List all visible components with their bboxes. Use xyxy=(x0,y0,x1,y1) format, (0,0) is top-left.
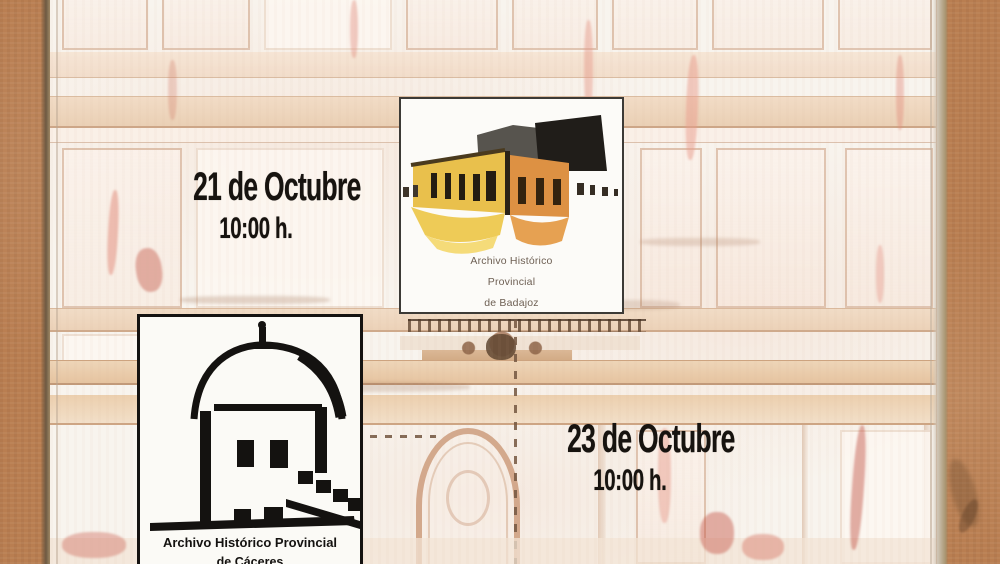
poster-sheet: 21 de Octubre 10:00 h. 23 de Octubre 10:… xyxy=(50,0,936,564)
dome-building-icon xyxy=(140,319,360,531)
date-label: 23 de Octubre xyxy=(567,422,734,456)
caption-line: de Badajoz xyxy=(401,293,622,314)
date-label: 21 de Octubre xyxy=(193,170,360,204)
poster-right-edge-shadow xyxy=(932,0,948,564)
time-label: 10:00 h. xyxy=(219,217,292,241)
poster-photo: 21 de Octubre 10:00 h. 23 de Octubre 10:… xyxy=(0,0,1000,564)
badajoz-logo-caption: Archivo Histórico Provincial de Badajoz xyxy=(401,251,622,314)
facade-edge-line xyxy=(56,0,58,564)
session-23-october: 23 de Octubre 10:00 h. xyxy=(524,422,736,495)
time-label: 10:00 h. xyxy=(593,469,666,493)
caption-line: Archivo Histórico xyxy=(401,251,622,272)
badajoz-archive-logo-box: Archivo Histórico Provincial de Badajoz xyxy=(399,97,624,314)
session-21-october: 21 de Octubre 10:00 h. xyxy=(150,170,362,243)
caceres-logo-caption: Archivo Histórico Provincial xyxy=(140,535,360,550)
caceres-logo-caption: de Cáceres xyxy=(140,555,360,564)
caption-line: Provincial xyxy=(401,272,622,293)
caceres-archive-logo-box: Archivo Histórico Provincial de Cáceres xyxy=(137,314,363,564)
archive-buildings-icon xyxy=(401,107,622,257)
